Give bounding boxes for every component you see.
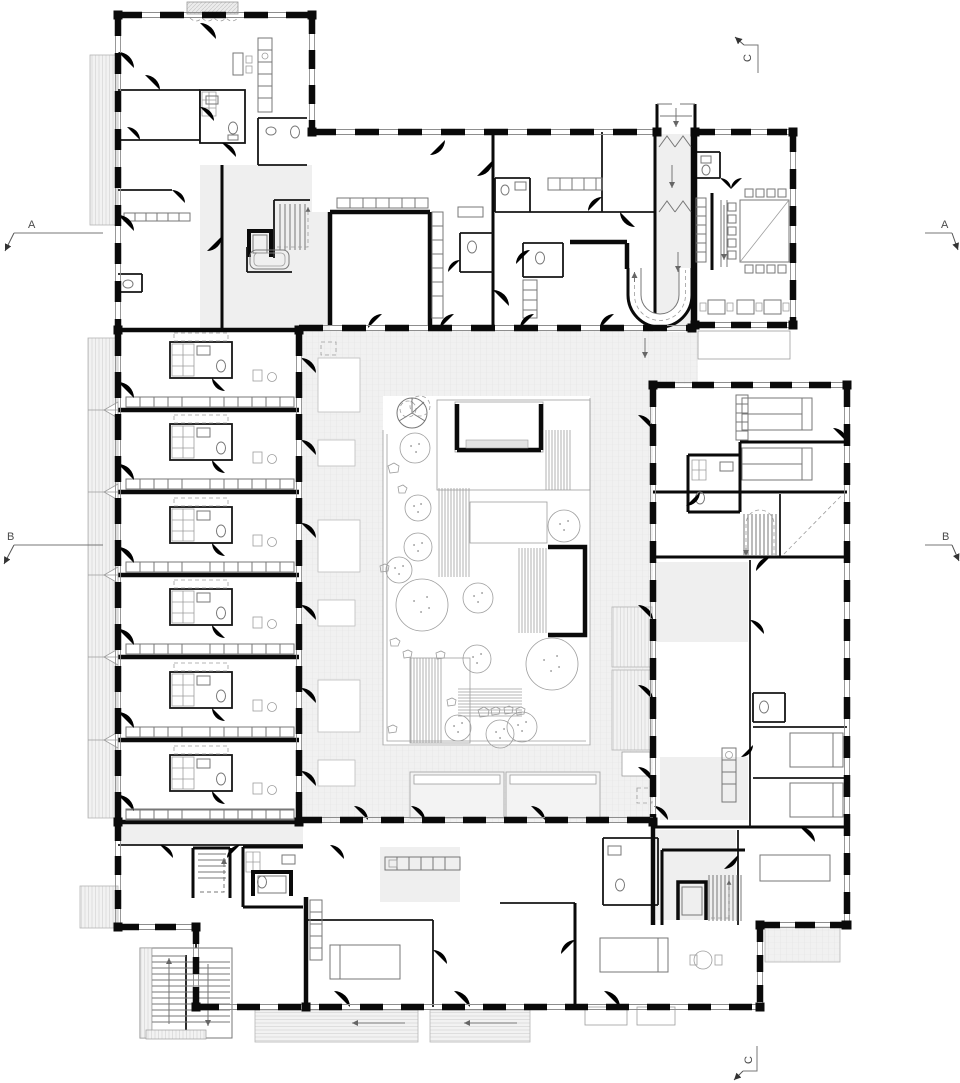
- dining-pavilion: [695, 132, 789, 325]
- section-label: B: [7, 531, 14, 543]
- garden-pavilion-north: [455, 402, 543, 452]
- terrace-sw: [80, 886, 118, 928]
- section-label: C: [743, 1056, 755, 1064]
- terrace-south-2: [430, 1010, 530, 1042]
- west-room-wing: [88, 330, 316, 822]
- sw-exterior-stair: [140, 948, 232, 1039]
- cafe-tables: [700, 300, 789, 314]
- floor-plan-page: A A B B C C: [0, 0, 960, 1083]
- balcony-east-2: [612, 670, 652, 750]
- terrace-south-1: [255, 1010, 418, 1042]
- section-label: B: [942, 531, 949, 543]
- dining-chairs: [728, 189, 786, 273]
- balcony-east-1: [612, 607, 652, 667]
- section-label: A: [941, 219, 949, 231]
- section-label: C: [742, 54, 754, 62]
- section-marker-a-right: A: [925, 219, 958, 250]
- section-marker-b-right: B: [925, 531, 959, 561]
- section-marker-c-top: C: [735, 37, 758, 73]
- floor-plan-drawing: A A B B C C: [0, 0, 960, 1083]
- section-marker-a-left: A: [5, 219, 103, 251]
- garden-pavilion-east: [548, 547, 585, 635]
- north-wing: [330, 104, 695, 330]
- terrace-dining: [698, 331, 790, 359]
- terrace-se: [765, 927, 840, 962]
- terrace-nw: [90, 55, 118, 225]
- section-marker-c-bottom: C: [734, 1046, 757, 1080]
- section-label: A: [28, 219, 36, 231]
